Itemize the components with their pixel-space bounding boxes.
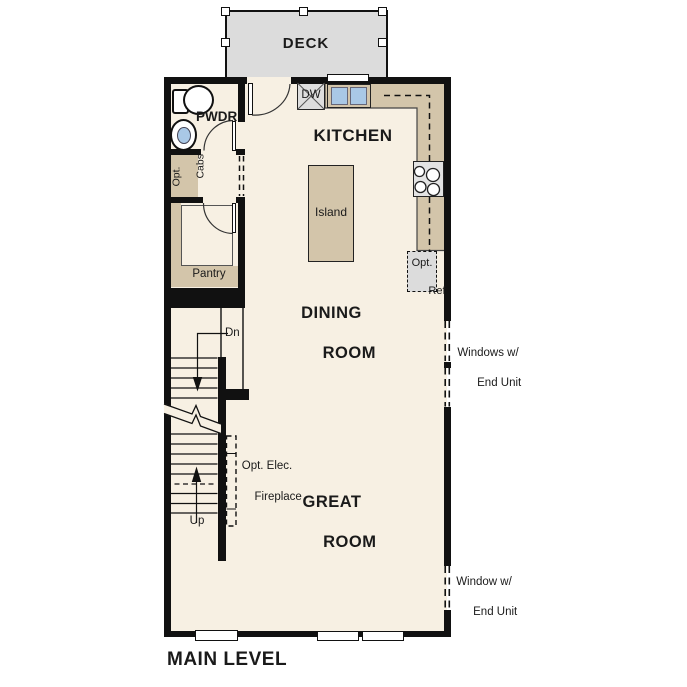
stair-down-arrow-icon [193,334,228,392]
pantry-door-arc [203,203,233,234]
window-lower-line-2: End Unit [473,606,517,618]
stair-up-label: Up [185,515,209,527]
dining-line-1: DINING [301,304,362,322]
powder-room-label: PWDR [196,109,242,124]
windows-upper-line-2: End Unit [477,377,521,389]
dishwasher-label: DW [297,89,325,101]
fireplace-label: Opt. Elec. Fireplace [226,459,308,506]
dining-line-2: ROOM [323,344,376,362]
opt-ref-line-1: Opt. [412,257,433,269]
door-swing-arcs [203,84,290,234]
opt-cabs-line-1: Opt. [171,166,183,186]
floor-plan: DECK PWDR KITCHEN Island DINING ROOM GRE… [0,0,687,687]
opt-cabs-line-2: Cabs [195,154,207,179]
great-line-2: ROOM [323,533,376,551]
fireplace-line-2: Fireplace [255,491,302,503]
window-lower-line-1: Window w/ [456,576,512,588]
great-line-1: GREAT [302,493,361,511]
nook-opening-dashed [240,156,244,196]
opt-cabs-label: Opt. Cabs [171,153,198,199]
stair-treads [171,358,218,513]
opt-ref-label: Opt. Ref [407,256,437,298]
fireplace-line-1: Opt. Elec. [242,460,293,472]
window-lower-label: Window w/ End Unit [446,575,522,620]
plan-title: MAIN LEVEL [167,649,337,671]
deck-label: DECK [276,35,336,52]
stair-down-label: Dn [225,327,247,339]
deck-door-arc [252,84,290,115]
kitchen-label: KITCHEN [303,126,403,146]
powder-door-arc [204,121,233,151]
stair-opening-edges [221,308,243,390]
stair-break-line [164,404,221,435]
windows-upper-line-1: Windows w/ [457,347,518,359]
opt-ref-line-2: Ref [428,285,445,297]
island-label: Island [306,205,356,219]
dining-room-label: DINING ROOM [281,303,382,363]
windows-upper-label: Windows w/ End Unit [449,346,527,391]
stove-burners-icon [415,167,440,196]
pantry-label: Pantry [178,268,240,280]
